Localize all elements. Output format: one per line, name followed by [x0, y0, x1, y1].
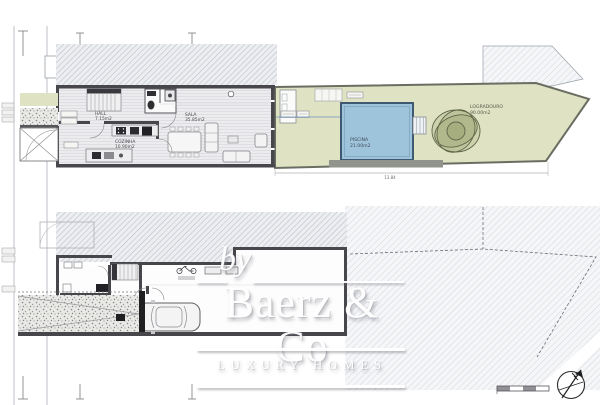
label-total-length: 13.84 — [384, 175, 396, 180]
plan-drawing: LOGRADOURO 90.00m2 PISCINA 21.00m2 13.84 — [0, 0, 600, 405]
dimension-ticks-bottom — [18, 376, 196, 399]
stairs-garage-level — [112, 264, 138, 280]
kitchen-counter — [112, 125, 158, 136]
label-logradouro-name: LOGRADOURO — [470, 104, 503, 110]
label-piscina-name: PISCINA — [350, 137, 369, 143]
front-yard — [2, 93, 58, 161]
label-logradouro-area: 90.00m2 — [470, 110, 491, 116]
north-arrow-icon — [558, 370, 585, 399]
kitchen-island — [86, 149, 132, 162]
entry-ramp-gate — [20, 128, 58, 161]
label-cozinha-area: 10.90m2 — [115, 144, 135, 150]
car-icon — [138, 300, 200, 334]
ceiling-light — [228, 91, 234, 97]
pool-deck-band — [329, 160, 443, 168]
pool-steps — [413, 117, 426, 134]
garage-ramp — [18, 291, 145, 332]
garage-door — [139, 291, 145, 332]
label-piscina-area: 21.00m2 — [350, 143, 371, 149]
bathroom — [145, 89, 176, 113]
basement-hatch-area — [345, 206, 600, 390]
label-hall-area: 7.15m2 — [95, 116, 112, 122]
neighbor-building-hatch-right — [483, 46, 583, 86]
stairs-ground-floor — [87, 89, 121, 111]
neighbor-building-hatch-top — [56, 44, 277, 85]
scale-bar — [497, 386, 549, 394]
label-sala-area: 35.85m2 — [185, 117, 205, 123]
garden: LOGRADOURO 90.00m2 PISCINA 21.00m2 — [275, 83, 589, 168]
street-lines — [14, 26, 47, 405]
ground-floor-plan: HALL 7.15m2 COZINHA 10.90m2 SALA 35.85m2 — [45, 85, 275, 168]
pool — [341, 103, 413, 160]
floor-plan-sheet: LOGRADOURO 90.00m2 PISCINA 21.00m2 13.84 — [0, 0, 600, 405]
